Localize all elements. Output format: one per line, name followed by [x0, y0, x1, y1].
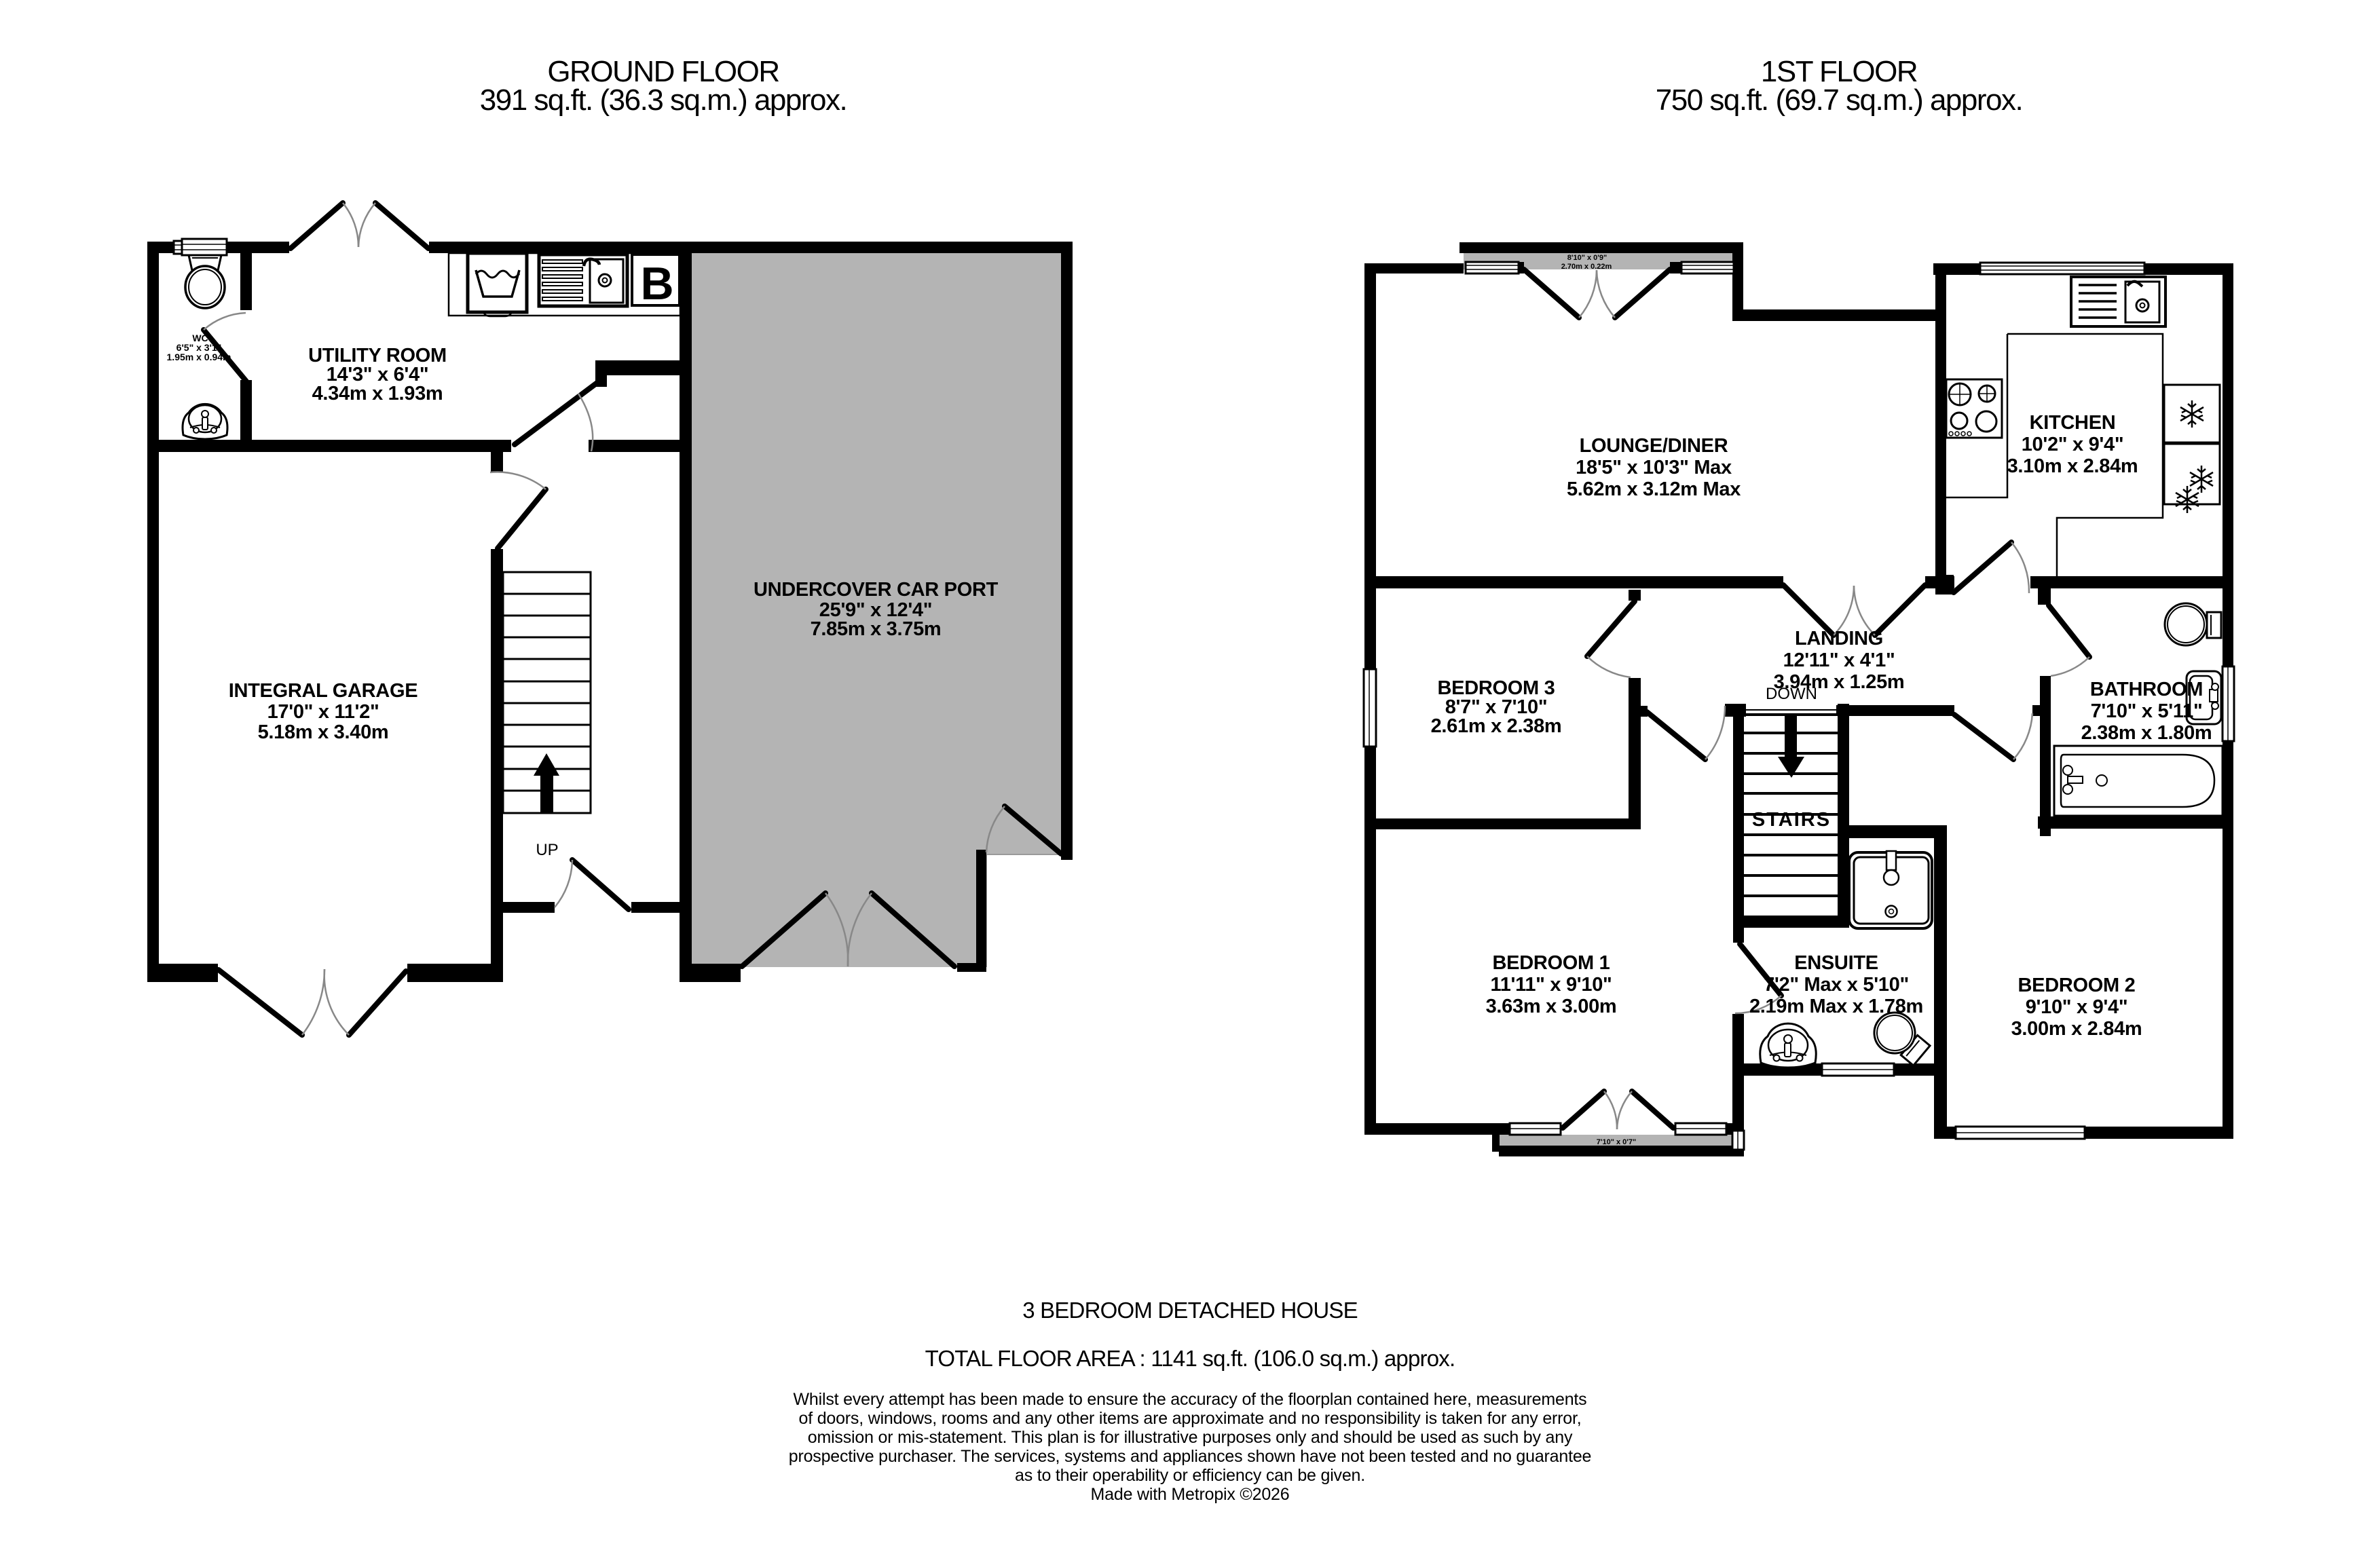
svg-text:Whilst every attempt has been: Whilst every attempt has been made to en… — [794, 1390, 1587, 1409]
svg-text:prospective purchaser. The ser: prospective purchaser. The services, sys… — [789, 1447, 1591, 1466]
svg-text:2.70m x 0.22m: 2.70m x 0.22m — [1561, 263, 1612, 271]
svg-text:8'10" x 0'9": 8'10" x 0'9" — [1567, 254, 1607, 262]
svg-text:4.34m x 1.93m: 4.34m x 1.93m — [312, 383, 443, 404]
svg-text:ENSUITE: ENSUITE — [1794, 952, 1878, 974]
svg-text:391 sq.ft. (36.3 sq.m.) approx: 391 sq.ft. (36.3 sq.m.) approx. — [480, 83, 847, 117]
svg-text:10'2" x 9'4": 10'2" x 9'4" — [2022, 434, 2124, 455]
svg-text:2.61m x 2.38m: 2.61m x 2.38m — [1431, 715, 1562, 737]
svg-text:TOTAL FLOOR AREA : 1141 sq.ft.: TOTAL FLOOR AREA : 1141 sq.ft. (106.0 sq… — [925, 1346, 1455, 1371]
svg-text:3.00m x 2.84m: 3.00m x 2.84m — [2011, 1018, 2142, 1040]
svg-text:1.95m x 0.94m: 1.95m x 0.94m — [167, 352, 231, 362]
svg-text:STAIRS: STAIRS — [1752, 809, 1831, 831]
svg-text:KITCHEN: KITCHEN — [2030, 412, 2116, 434]
svg-text:11'11" x 9'10": 11'11" x 9'10" — [1490, 974, 1612, 996]
svg-text:DOWN: DOWN — [1766, 685, 1817, 703]
svg-text:17'0" x 11'2": 17'0" x 11'2" — [267, 701, 379, 723]
svg-text:750 sq.ft. (69.7 sq.m.) approx: 750 sq.ft. (69.7 sq.m.) approx. — [1656, 83, 2022, 117]
svg-text:3.63m x 3.00m: 3.63m x 3.00m — [1486, 996, 1617, 1017]
svg-text:as to their operability or eff: as to their operability or efficiency ca… — [1015, 1466, 1365, 1485]
svg-text:7'10" x 5'11": 7'10" x 5'11" — [2091, 700, 2203, 722]
svg-text:7'10" x 0'7": 7'10" x 0'7" — [1597, 1138, 1636, 1146]
svg-text:UNDERCOVER CAR PORT: UNDERCOVER CAR PORT — [754, 579, 999, 601]
svg-text:2.38m x 1.80m: 2.38m x 1.80m — [2081, 722, 2212, 744]
svg-text:omission or mis-statement. Thi: omission or mis-statement. This plan is … — [808, 1428, 1573, 1447]
svg-text:3.10m x 2.84m: 3.10m x 2.84m — [2007, 455, 2138, 477]
svg-text:of doors, windows, rooms and a: of doors, windows, rooms and any other i… — [799, 1409, 1582, 1428]
svg-text:LANDING: LANDING — [1795, 628, 1883, 649]
svg-text:5.62m x 3.12m Max: 5.62m x 3.12m Max — [1567, 478, 1741, 500]
svg-text:7'2" Max x 5'10": 7'2" Max x 5'10" — [1764, 974, 1909, 996]
svg-text:2.19m Max x 1.78m: 2.19m Max x 1.78m — [1749, 996, 1923, 1017]
svg-text:UP: UP — [536, 841, 558, 859]
svg-text:BATHROOM: BATHROOM — [2090, 679, 2203, 700]
svg-text:9'10" x 9'4": 9'10" x 9'4" — [2026, 996, 2128, 1018]
svg-text:7.85m x 3.75m: 7.85m x 3.75m — [811, 618, 942, 640]
svg-text:BEDROOM 1: BEDROOM 1 — [1493, 952, 1610, 974]
svg-text:12'11" x 4'1": 12'11" x 4'1" — [1783, 649, 1895, 671]
svg-text:LOUNGE/DINER: LOUNGE/DINER — [1580, 435, 1728, 457]
svg-text:18'5" x 10'3" Max: 18'5" x 10'3" Max — [1576, 457, 1732, 478]
svg-text:BEDROOM 2: BEDROOM 2 — [2018, 975, 2136, 996]
svg-text:Made with Metropix ©2026: Made with Metropix ©2026 — [1091, 1485, 1290, 1504]
svg-text:B: B — [640, 258, 673, 309]
svg-text:5.18m x 3.40m: 5.18m x 3.40m — [258, 721, 389, 743]
svg-text:INTEGRAL GARAGE: INTEGRAL GARAGE — [229, 680, 418, 702]
svg-text:3 BEDROOM DETACHED HOUSE: 3 BEDROOM DETACHED HOUSE — [1022, 1298, 1358, 1323]
